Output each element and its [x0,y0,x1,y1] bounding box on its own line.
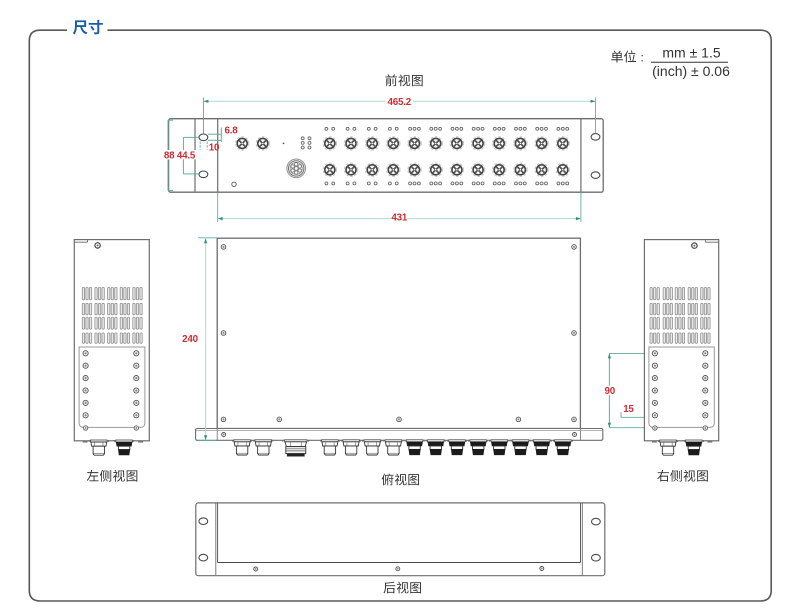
svg-text:6.8: 6.8 [225,126,239,137]
svg-text:88 44.5: 88 44.5 [164,151,196,162]
svg-text:431: 431 [391,212,407,223]
svg-text:10: 10 [209,142,220,153]
svg-text:(inch) ± 0.06: (inch) ± 0.06 [652,63,730,79]
svg-text:240: 240 [182,334,198,345]
svg-text:mm ± 1.5: mm ± 1.5 [662,45,720,61]
svg-text:15: 15 [623,404,634,415]
svg-text:90: 90 [605,386,616,397]
svg-text::: : [641,51,644,65]
svg-text:465.2: 465.2 [388,97,412,108]
